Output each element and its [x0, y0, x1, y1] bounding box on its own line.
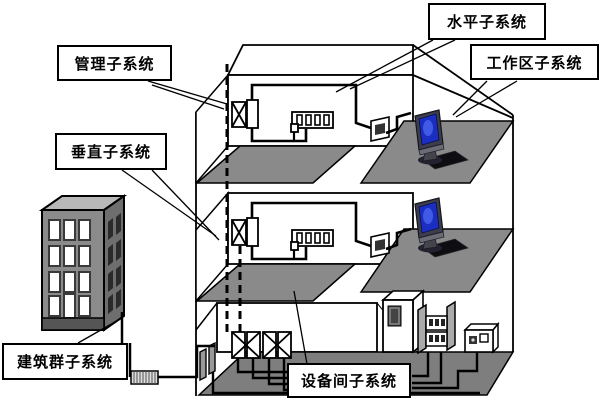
wall-outlet-icon: [371, 233, 389, 257]
floor3-room: [196, 75, 513, 183]
conduit-icon: [131, 371, 158, 384]
campus-building-icon: [42, 196, 124, 330]
label-work-area: 工作区子系统: [470, 44, 599, 80]
label-equipment-room: 设备间子系统: [287, 363, 411, 398]
cabling-diagram: 管理子系统 水平子系统 工作区子系统 垂直子系统 建筑群子系统 设备间子系统: [0, 0, 600, 400]
label-horizontal: 水平子系统: [428, 3, 546, 40]
network-device-icon: [465, 324, 498, 352]
server-cabinet-icon: [383, 291, 423, 352]
label-vertical: 垂直子系统: [55, 133, 167, 170]
cross-connect-icon: [232, 100, 258, 128]
computer-icon: [415, 198, 468, 257]
label-management: 管理子系统: [57, 45, 172, 81]
label-campus: 建筑群子系统: [2, 343, 128, 380]
distribution-rack-icon: [418, 302, 455, 353]
cross-connect-icon: [232, 218, 258, 246]
wall-outlet-icon: [371, 117, 389, 141]
